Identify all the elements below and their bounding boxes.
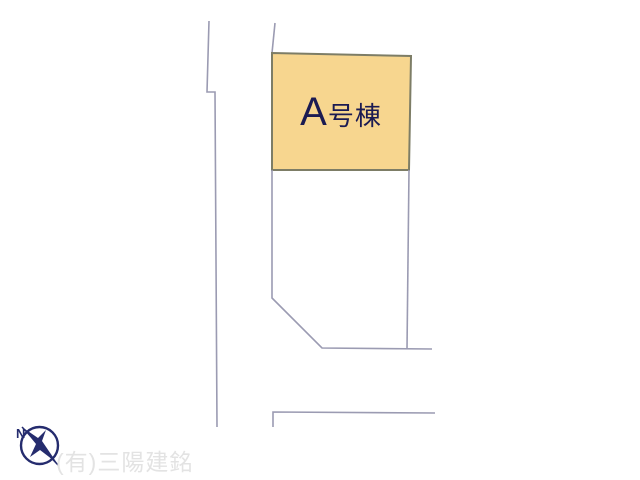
road-edge-left	[207, 21, 217, 427]
site-plan-drawing	[0, 0, 640, 480]
parcel-b-right-edge	[407, 170, 409, 349]
compass-north-label: N	[16, 426, 25, 441]
site-plan-canvas: A号棟 N (有)三陽建銘	[0, 0, 640, 480]
road-edge-right-top	[272, 23, 275, 53]
company-watermark: (有)三陽建銘	[56, 443, 193, 477]
parcel-a-shape	[272, 53, 411, 170]
road-edge-bottom	[273, 412, 435, 427]
